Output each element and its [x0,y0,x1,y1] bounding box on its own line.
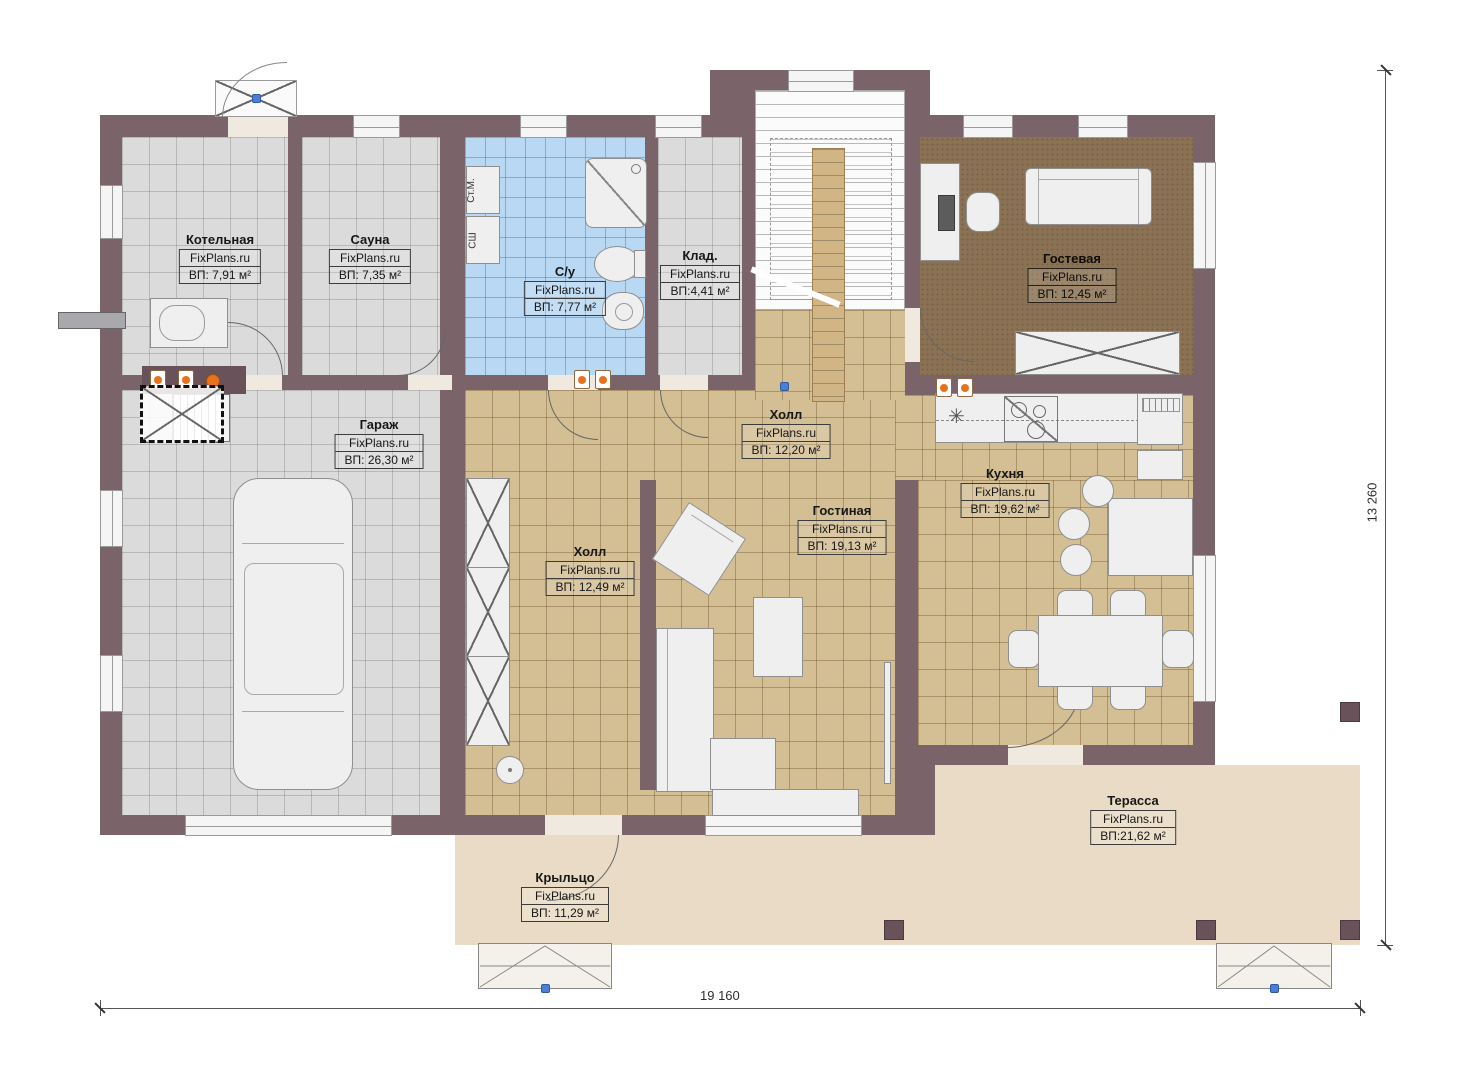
terrace-column [1340,920,1360,940]
watermark: FixPlans.ru [743,425,830,442]
guest-wardrobe [1015,331,1180,375]
hall-living-partition [640,480,656,790]
terrace-slab [935,765,1360,945]
dimension-width: 19 160 [700,988,740,1003]
level-marker [541,984,550,993]
garage-window-1 [100,490,123,547]
storage-window [655,115,702,138]
washing-machine-label: Ст.М. [466,178,477,203]
room-area: ВП: 12,49 м² [547,579,634,595]
stair-bay-window [788,70,854,92]
watermark: FixPlans.ru [522,888,608,905]
drying-cabinet-label: СШ [468,232,479,248]
bar-stool [1060,544,1092,576]
guest-window-2 [1078,115,1128,138]
room-name: Крыльцо [521,870,609,885]
terrace-door-opening [1008,745,1083,765]
room-label-living: Гостиная FixPlans.ru ВП: 19,13 м² [798,503,887,555]
sauna-door-opening [408,375,452,390]
level-marker [780,382,789,391]
boiler-window [100,185,123,239]
room-name: Терасса [1090,793,1176,808]
sauna-window [353,115,400,138]
watermark: FixPlans.ru [799,521,886,538]
room-label-porch: Крыльцо FixPlans.ru ВП: 11,29 м² [521,870,609,922]
room-label-terrace: Терасса FixPlans.ru ВП:21,62 м² [1090,793,1176,845]
level-marker [1270,984,1279,993]
terrace-column [1340,702,1360,722]
chimney-shaft [140,385,224,443]
drying-cabinet: СШ [466,216,500,264]
terrace-steps [1216,943,1332,989]
car [233,478,353,790]
sideboard [712,789,859,816]
canopy-door-swing [222,62,287,117]
hall-kitchen-opening-floor [895,395,935,480]
radiator [884,662,891,784]
dining-table [1038,615,1163,687]
room-name: Холл [546,544,635,559]
socket-icon [595,370,611,389]
room-label-hall-1: Холл FixPlans.ru ВП: 12,20 м² [742,407,831,459]
room-name: Клад. [660,248,740,263]
washing-machine: Ст.М. [466,166,500,214]
bar-stool [1082,475,1114,507]
watermark: FixPlans.ru [1091,811,1175,828]
dimension-line-right [1385,70,1386,945]
shower [585,158,647,228]
porch-steps [478,943,612,989]
watermark: FixPlans.ru [661,266,739,283]
room-name: Гостиная [798,503,887,518]
room-area: ВП: 7,35 м² [330,267,410,283]
dining-chair [1162,630,1194,668]
bar-stool [1058,508,1090,540]
room-area: ВП: 7,91 м² [180,267,260,283]
kitchen-right-window [1193,555,1216,702]
room-area: ВП: 7,77 м² [525,299,605,315]
fridge [1137,393,1183,445]
watermark: FixPlans.ru [336,435,423,452]
desk-chair [966,192,1000,232]
laptop [938,195,955,231]
room-area: ВП: 26,30 м² [336,452,423,468]
room-name: Холл [742,407,831,422]
terrace-column [1196,920,1216,940]
garage-door [185,815,392,836]
dimension-line-bottom [100,1008,1360,1009]
room-label-garage: Гараж FixPlans.ru ВП: 26,30 м² [335,417,424,469]
corner-sofa-long [656,628,714,792]
room-area: ВП:4,41 м² [661,283,739,299]
watermark: FixPlans.ru [547,562,634,579]
porch-steps-lines [479,944,611,988]
room-name: Котельная [179,232,261,247]
sink-basin [602,292,644,330]
room-label-storage: Клад. FixPlans.ru ВП:4,41 м² [660,248,740,300]
room-area: ВП: 12,20 м² [743,442,830,458]
room-area: ВП: 19,13 м² [799,538,886,554]
room-label-boiler: Котельная FixPlans.ru ВП: 7,91 м² [179,232,261,284]
bar-counter [1108,498,1193,576]
terrace-column [884,920,904,940]
terrace-steps-lines [1217,944,1331,988]
kitchen-counter: ✳ [935,393,1140,443]
watermark: FixPlans.ru [330,250,410,267]
hall-wardrobe [466,478,510,746]
room-name: Сауна [329,232,411,247]
coffee-table [753,597,803,677]
kitchen-cabinet [1137,450,1183,480]
bathroom-window [520,115,567,138]
stairs-lower-flight [812,148,845,402]
floor-lamp [496,756,524,784]
socket-icon [957,378,973,397]
boiler-exterior-door-opening [228,115,288,137]
floor-plan: Ст.М. СШ ✳ [0,0,1474,1080]
toilet-tank [634,250,646,278]
entry-door-opening [545,815,622,835]
room-area: ВП:21,62 м² [1091,828,1175,844]
level-marker [252,94,261,103]
room-label-bathroom: С/у FixPlans.ru ВП: 7,77 м² [524,264,606,316]
room-area: ВП: 12,45 м² [1029,286,1116,302]
room-area: ВП: 19,62 м² [962,501,1049,517]
flue-pipe [58,312,126,329]
garage-window-2 [100,655,123,712]
boiler-unit [150,298,228,348]
room-label-hall-2: Холл FixPlans.ru ВП: 12,49 м² [546,544,635,596]
room-name: Гараж [335,417,424,432]
room-name: Гостевая [1028,251,1117,266]
stove [1004,396,1058,442]
socket-icon [936,378,952,397]
watermark: FixPlans.ru [525,282,605,299]
guest-sofa [1025,168,1152,225]
storage-door-opening [660,375,708,390]
room-label-guest: Гостевая FixPlans.ru ВП: 12,45 м² [1028,251,1117,303]
watermark: FixPlans.ru [1029,269,1116,286]
room-label-kitchen: Кухня FixPlans.ru ВП: 19,62 м² [961,466,1050,518]
dining-chair [1008,630,1040,668]
corner-sofa-short [710,738,776,790]
room-label-sauna: Сауна FixPlans.ru ВП: 7,35 м² [329,232,411,284]
room-name: С/у [524,264,606,279]
watermark: FixPlans.ru [180,250,260,267]
sink-icon: ✳ [948,404,965,429]
bathroom-door-opening [548,375,598,390]
room-name: Кухня [961,466,1050,481]
dimension-height: 13 260 [1364,483,1379,523]
socket-icon [574,370,590,389]
living-room-window [705,815,862,836]
guest-right-window [1193,162,1216,269]
guest-window-1 [963,115,1013,138]
guest-door-opening [905,308,920,362]
room-area: ВП: 11,29 м² [522,905,608,921]
watermark: FixPlans.ru [962,484,1049,501]
